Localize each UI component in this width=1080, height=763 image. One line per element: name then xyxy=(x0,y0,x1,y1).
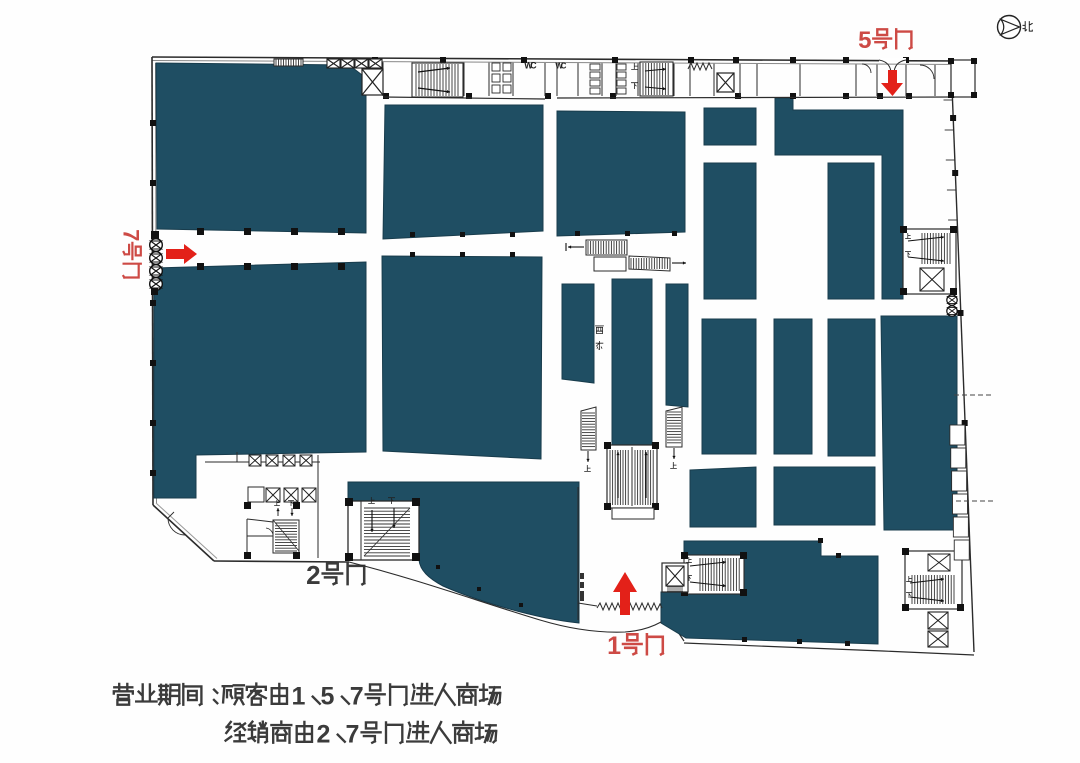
svg-text:7: 7 xyxy=(350,683,364,711)
svg-text:2: 2 xyxy=(306,560,320,590)
svg-text:5: 5 xyxy=(858,27,871,54)
svg-text:7: 7 xyxy=(119,229,144,241)
svg-text:5: 5 xyxy=(321,683,335,711)
svg-text:1: 1 xyxy=(607,632,621,660)
svg-text:C: C xyxy=(561,61,567,70)
svg-text:2: 2 xyxy=(316,721,330,749)
svg-text:C: C xyxy=(530,60,537,70)
svg-text:7: 7 xyxy=(346,721,360,749)
svg-text:1: 1 xyxy=(291,683,305,711)
